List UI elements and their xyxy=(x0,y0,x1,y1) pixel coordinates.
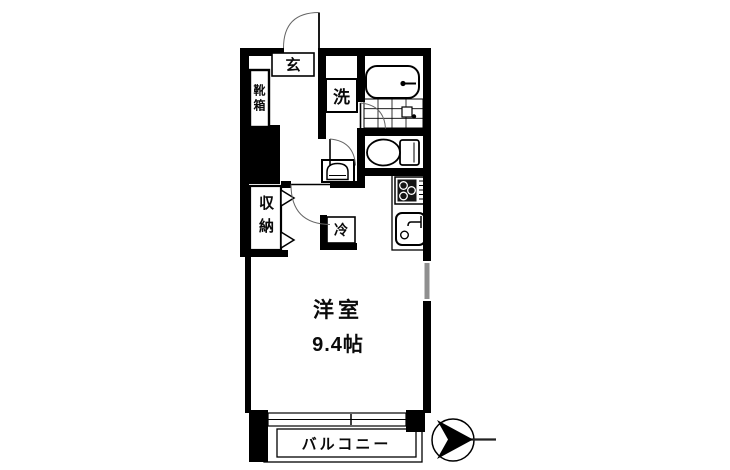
entrance-door-icon xyxy=(284,13,320,49)
refrigerator-label: 冷 xyxy=(327,217,355,243)
room-size-label: 9.4帖 xyxy=(258,330,418,355)
closet-label: 収納 xyxy=(250,190,281,246)
stove-icon xyxy=(395,177,426,204)
balcony-label: バルコニー xyxy=(277,431,416,455)
north-arrow-icon xyxy=(432,419,496,461)
floorplan: 玄 靴箱 洗 収納 冷 洋室 9.4帖 バルコニー xyxy=(0,0,730,470)
room-name-label: 洋室 xyxy=(258,297,418,321)
bathtub-icon xyxy=(366,66,419,98)
toilet-icon xyxy=(367,140,419,166)
shower-floor-tiles xyxy=(364,99,423,128)
side-window xyxy=(423,261,432,301)
balcony-window xyxy=(268,413,406,426)
entrance-label: 玄 xyxy=(272,53,314,76)
kitchen-sink-icon xyxy=(396,213,425,245)
shoe-cabinet-label: 靴箱 xyxy=(250,72,269,125)
floorplan-drawing xyxy=(0,0,730,470)
washbasin-icon xyxy=(322,160,354,182)
washing-machine-label: 洗 xyxy=(326,79,357,112)
